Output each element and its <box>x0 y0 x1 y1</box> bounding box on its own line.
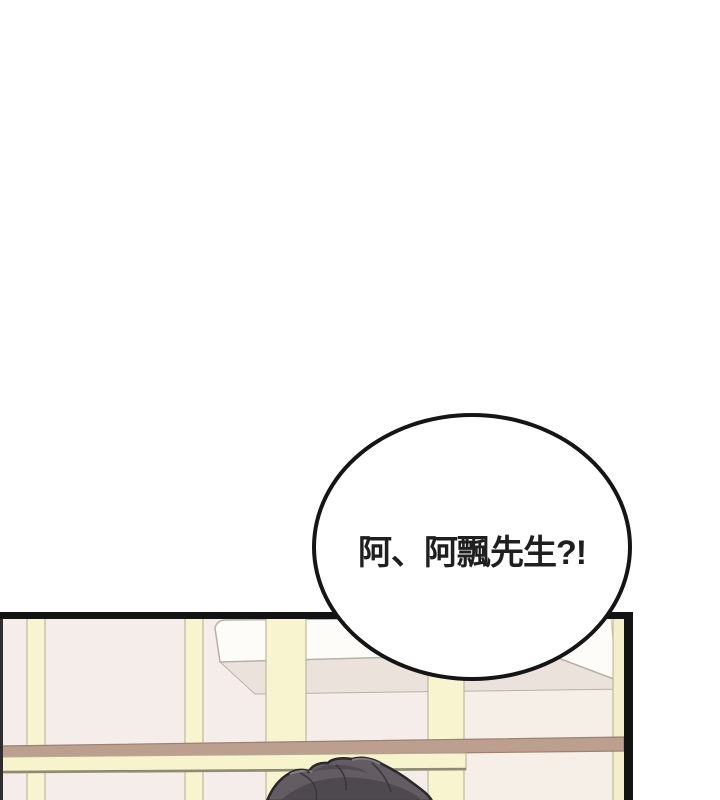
panel-border-left <box>0 612 3 800</box>
mullion-2 <box>185 616 203 800</box>
speech-bubble: 阿、阿飄先生?! <box>312 413 632 681</box>
comic-page: 阿、阿飄先生?! <box>0 0 720 800</box>
speech-bubble-text: 阿、阿飄先生?! <box>358 525 586 574</box>
panel-border-right <box>624 612 633 800</box>
cream-rail <box>2 753 466 773</box>
